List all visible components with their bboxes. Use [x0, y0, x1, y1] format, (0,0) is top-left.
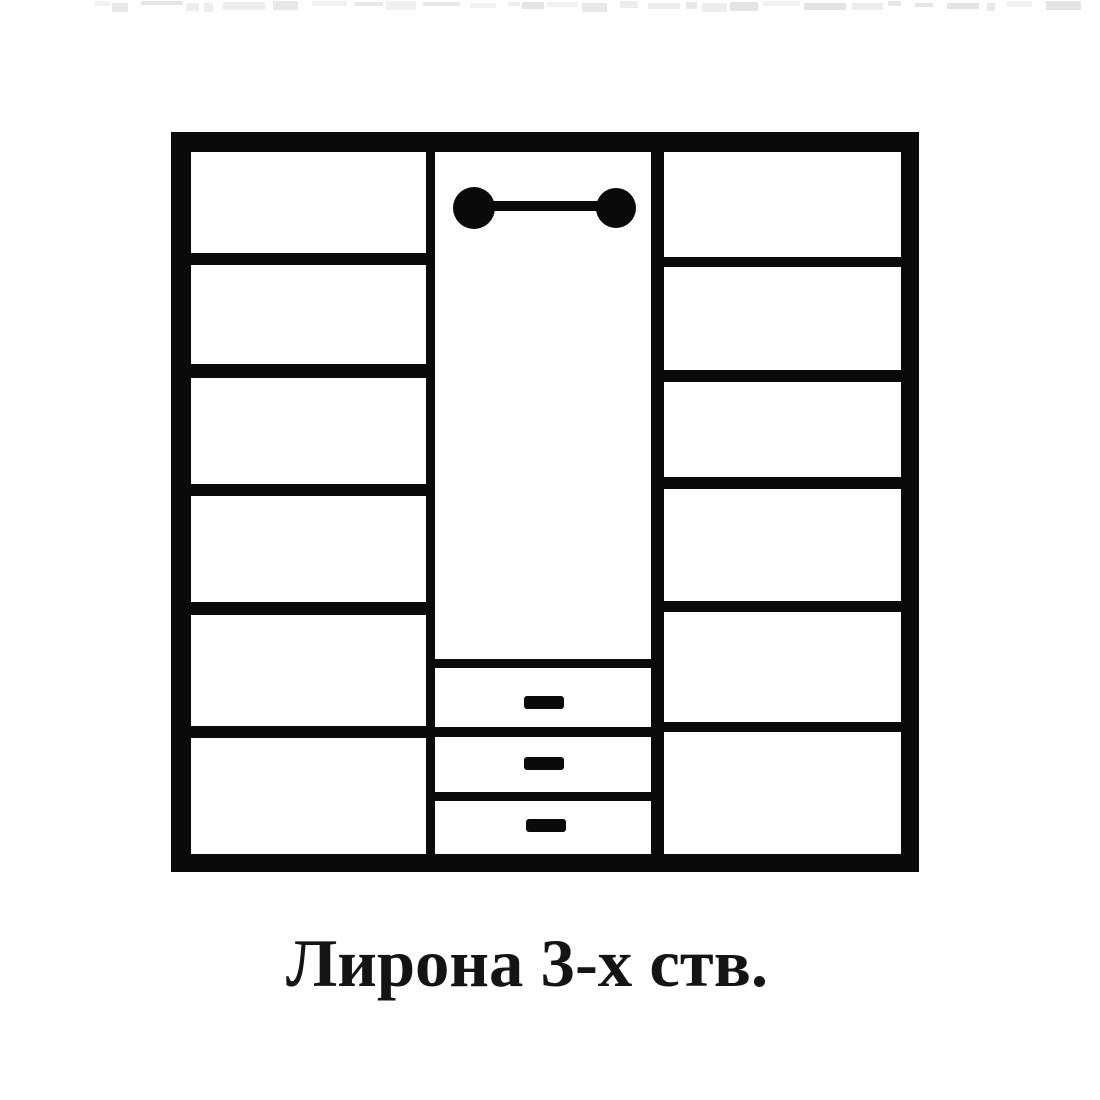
svg-text:Лирона 3-х ств.: Лирона 3-х ств.	[286, 925, 768, 1001]
